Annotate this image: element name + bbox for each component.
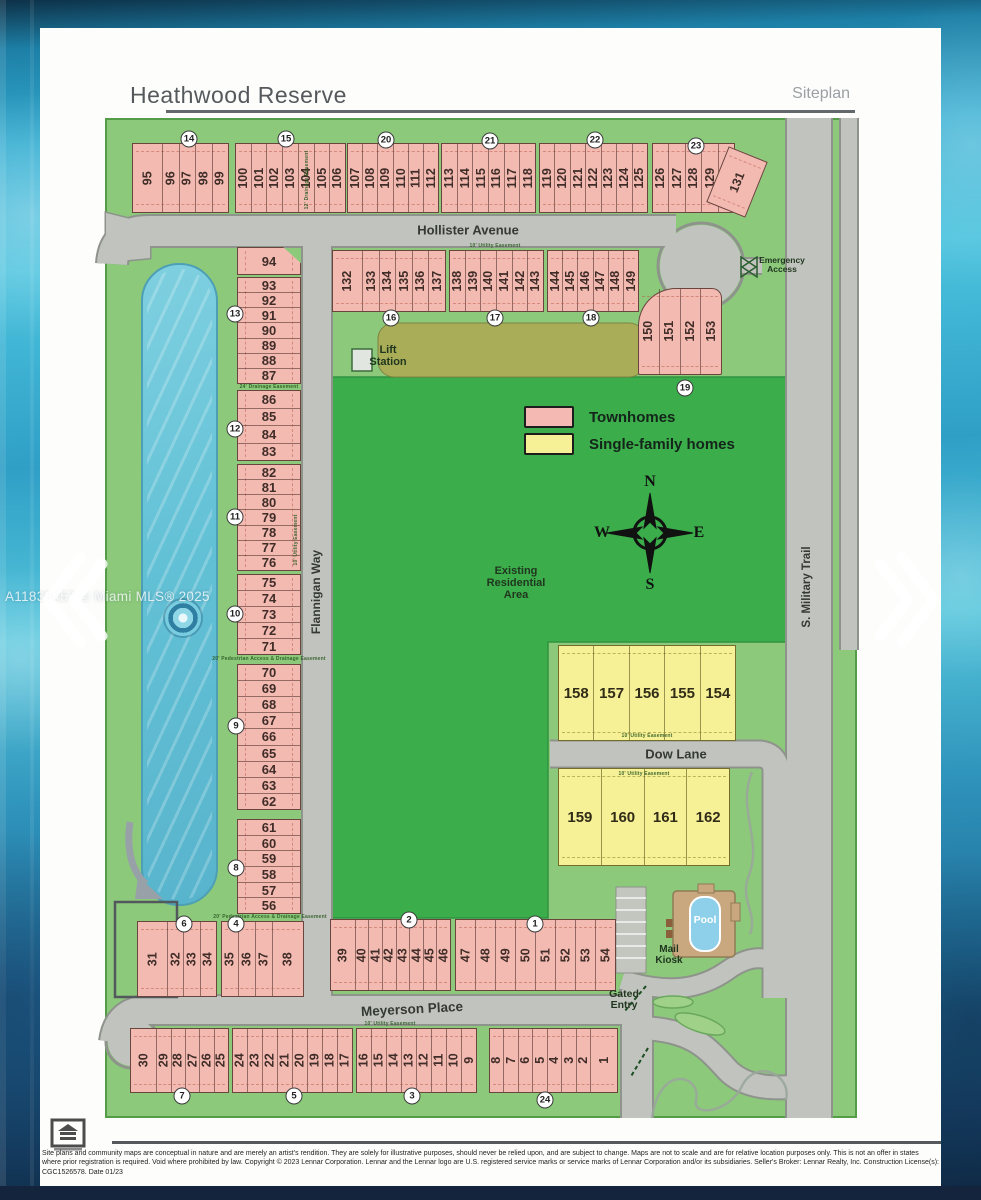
existing-residential-area-shape bbox=[332, 377, 787, 918]
next-photo-button[interactable] bbox=[872, 548, 948, 652]
title-underline bbox=[166, 110, 855, 113]
photo-viewer: Heathwood Reserve Siteplan bbox=[0, 0, 981, 1200]
bottom-bar bbox=[0, 1186, 981, 1200]
lift-station-icon bbox=[352, 349, 372, 371]
annotation-arrow bbox=[129, 822, 163, 899]
previous-photo-button[interactable] bbox=[34, 548, 110, 652]
page-title: Heathwood Reserve bbox=[130, 82, 347, 109]
retention-strip bbox=[378, 323, 645, 377]
pool-shape bbox=[673, 884, 740, 957]
equal-housing-logo bbox=[50, 1118, 86, 1152]
footer-divider bbox=[112, 1141, 941, 1144]
legal-disclaimer: Site plans and community maps are concep… bbox=[42, 1149, 939, 1177]
parking-strip bbox=[616, 887, 646, 973]
boundary-outline bbox=[115, 902, 177, 997]
page-subtitle: Siteplan bbox=[792, 85, 850, 103]
